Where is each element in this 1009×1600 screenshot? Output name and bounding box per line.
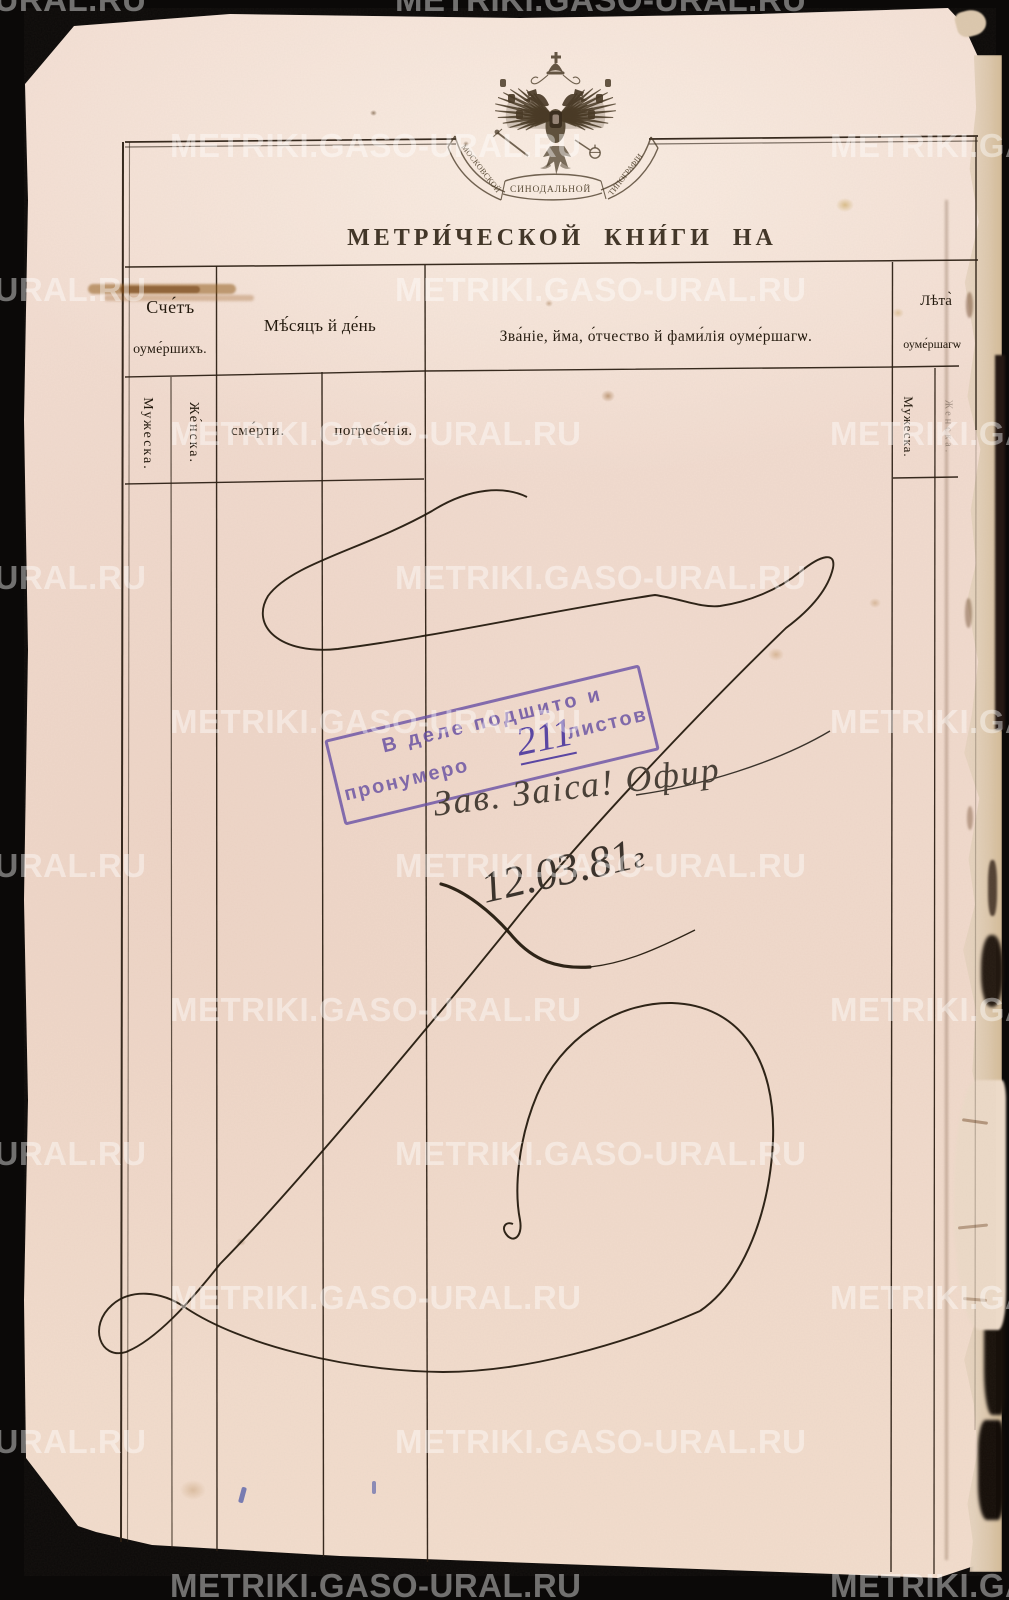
- svg-text:СИНОДАЛЬНОЙ: СИНОДАЛЬНОЙ: [510, 183, 591, 195]
